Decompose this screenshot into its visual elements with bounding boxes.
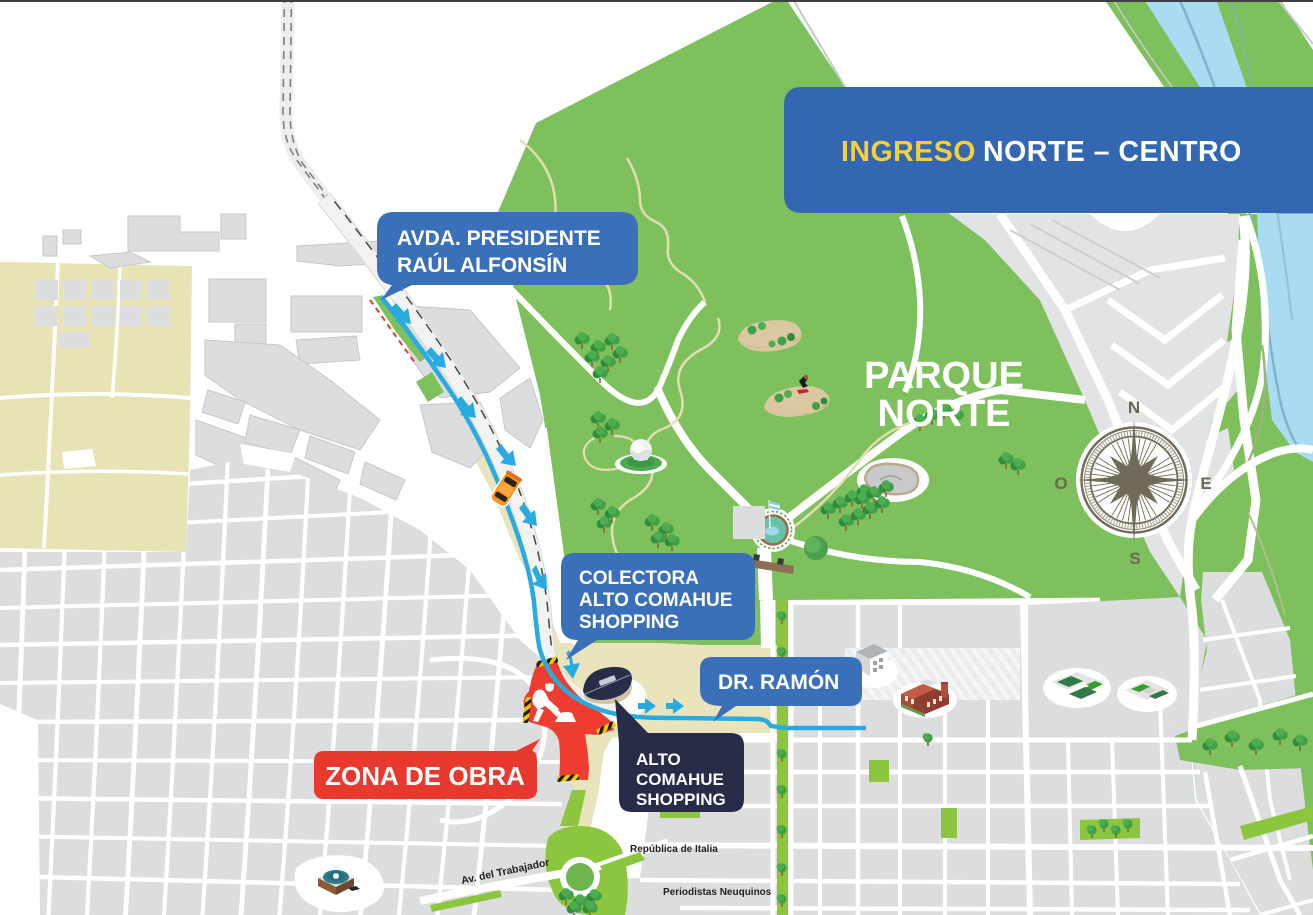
svg-text:NORTE: NORTE: [878, 393, 1011, 435]
svg-text:ZONA DE OBRA: ZONA DE OBRA: [325, 761, 525, 791]
svg-text:S: S: [1129, 549, 1140, 568]
svg-text:DR. RAMÓN: DR. RAMÓN: [718, 670, 839, 694]
svg-text:COLECTORA: COLECTORA: [579, 568, 699, 589]
svg-text:República de Italia: República de Italia: [630, 844, 718, 855]
svg-text:RAÚL ALFONSÍN: RAÚL ALFONSÍN: [397, 253, 567, 277]
svg-text:NORTE – CENTRO: NORTE – CENTRO: [983, 136, 1242, 168]
svg-text:N: N: [1128, 398, 1140, 417]
svg-text:O: O: [1054, 474, 1067, 493]
svg-text:E: E: [1200, 474, 1211, 493]
svg-text:AVDA. PRESIDENTE: AVDA. PRESIDENTE: [397, 227, 601, 250]
svg-text:INGRESO: INGRESO: [841, 136, 976, 168]
svg-text:SHOPPING: SHOPPING: [579, 612, 679, 633]
svg-text:Periodistas Neuquinos: Periodistas Neuquinos: [663, 887, 772, 898]
svg-text:SHOPPING: SHOPPING: [636, 790, 726, 809]
svg-text:ALTO COMAHUE: ALTO COMAHUE: [579, 590, 732, 611]
svg-text:ALTO: ALTO: [636, 750, 681, 769]
svg-text:COMAHUE: COMAHUE: [636, 770, 724, 789]
svg-text:PARQUE: PARQUE: [864, 355, 1024, 397]
